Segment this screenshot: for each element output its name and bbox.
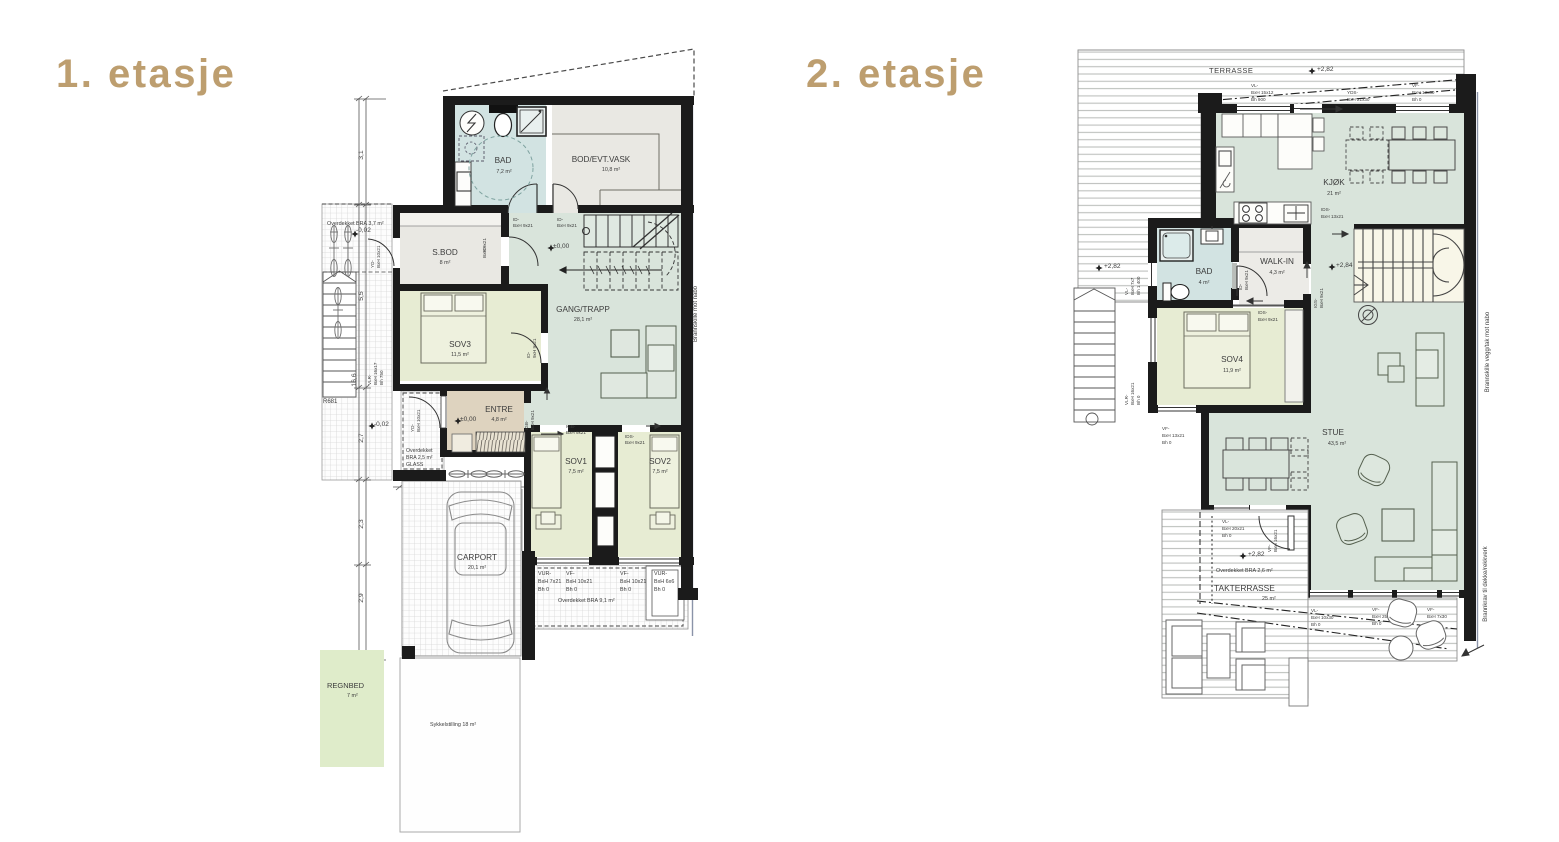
- svg-text:+2,82: +2,82: [1104, 263, 1121, 270]
- svg-text:BxH 10x21: BxH 10x21: [566, 579, 592, 585]
- svg-text:BxH 13x21: BxH 13x21: [1321, 214, 1344, 219]
- svg-text:BxH 9x21: BxH 9x21: [482, 238, 487, 258]
- svg-text:2,7: 2,7: [358, 433, 365, 443]
- svg-text:Overdekket BRA 2,6 m²: Overdekket BRA 2,6 m²: [1216, 568, 1273, 574]
- svg-text:7,2 m²: 7,2 m²: [496, 169, 511, 175]
- svg-text:BOD/EVT.VASK: BOD/EVT.VASK: [572, 155, 631, 164]
- svg-text:SOV1: SOV1: [565, 457, 587, 466]
- svg-text:BAD: BAD: [1196, 267, 1213, 276]
- svg-text:BxH 9x21: BxH 9x21: [1319, 288, 1324, 308]
- svg-text:R681: R681: [323, 399, 338, 405]
- svg-text:7,5 m²: 7,5 m²: [652, 469, 667, 475]
- svg-text:21 m²: 21 m²: [1327, 191, 1341, 197]
- svg-text:VUR-: VUR-: [538, 571, 551, 577]
- svg-text:ID-: ID-: [513, 217, 520, 222]
- svg-text:3,1: 3,1: [358, 150, 365, 160]
- svg-text:TERRASSE: TERRASSE: [1209, 66, 1253, 75]
- svg-text:CARPORT: CARPORT: [457, 553, 497, 562]
- svg-text:ENTRE: ENTRE: [485, 405, 513, 414]
- svg-text:IDS-: IDS-: [1258, 310, 1268, 315]
- svg-text:BxH 15x12: BxH 15x12: [1251, 90, 1274, 95]
- svg-text:VLR-: VLR-: [367, 374, 372, 385]
- svg-text:2. etasje: 2. etasje: [806, 52, 986, 96]
- svg-text:BxH 9x21: BxH 9x21: [1244, 270, 1249, 290]
- svg-text:4,8 m²: 4,8 m²: [491, 417, 506, 423]
- svg-text:BxH 7x30: BxH 7x30: [1427, 614, 1447, 619]
- svg-text:9xH 9x21: 9xH 9x21: [532, 338, 537, 358]
- svg-text:BxH 13x21: BxH 13x21: [1162, 433, 1185, 438]
- svg-text:Brannkrav til dekke/rekkverk: Brannkrav til dekke/rekkverk: [1483, 545, 1489, 621]
- svg-text:7 m²: 7 m²: [347, 693, 358, 699]
- svg-text:Bh 1 400: Bh 1 400: [1136, 276, 1141, 295]
- svg-text:VL-: VL-: [1222, 519, 1230, 524]
- svg-text:S.BOD: S.BOD: [432, 248, 458, 257]
- svg-text:BxH 9x21: BxH 9x21: [625, 440, 645, 445]
- svg-text:2,9: 2,9: [358, 593, 365, 603]
- svg-text:4,3 m²: 4,3 m²: [1269, 270, 1284, 276]
- svg-text:IDS-: IDS-: [1321, 207, 1331, 212]
- svg-text:BxH 16x21: BxH 16x21: [1130, 382, 1135, 405]
- svg-text:GLASS: GLASS: [406, 462, 424, 468]
- svg-text:REGNBED: REGNBED: [327, 681, 365, 690]
- svg-text:8 m²: 8 m²: [440, 260, 451, 266]
- svg-text:20,1 m²: 20,1 m²: [468, 565, 486, 571]
- svg-text:ID-: ID-: [557, 217, 564, 222]
- svg-text:Brannskille mot nabo: Brannskille mot nabo: [693, 285, 699, 342]
- svg-text:Brannskille vegg/tak mot nabo: Brannskille vegg/tak mot nabo: [1485, 311, 1491, 392]
- svg-text:±0,00: ±0,00: [460, 416, 477, 423]
- svg-text:GANG/TRAPP: GANG/TRAPP: [556, 305, 610, 314]
- svg-text:STUE: STUE: [1322, 428, 1344, 437]
- svg-text:Bh 0: Bh 0: [538, 587, 549, 593]
- svg-text:BxH 9x21: BxH 9x21: [557, 223, 577, 228]
- svg-text:11,9 m²: 11,9 m²: [1223, 368, 1241, 374]
- svg-text:WALK-IN: WALK-IN: [1260, 257, 1294, 266]
- svg-text:BxH 16x17: BxH 16x17: [373, 362, 378, 385]
- svg-text:ID-: ID-: [1238, 283, 1243, 290]
- svg-text:1. etasje: 1. etasje: [56, 52, 236, 96]
- svg-text:SOV3: SOV3: [449, 340, 471, 349]
- svg-text:Bh 0: Bh 0: [1136, 395, 1141, 405]
- svg-text:Bh 0: Bh 0: [1412, 97, 1422, 102]
- svg-text:SOV4: SOV4: [1221, 355, 1243, 364]
- svg-text:IGS-: IGS-: [1313, 298, 1318, 308]
- svg-text:Overdekket: Overdekket: [406, 448, 433, 454]
- svg-text:28,1 m²: 28,1 m²: [574, 317, 592, 323]
- svg-text:KJØK: KJØK: [1323, 178, 1345, 187]
- svg-text:BxH 9x21: BxH 9x21: [566, 430, 586, 435]
- svg-text:-0,02: -0,02: [356, 227, 371, 234]
- svg-text:VLR-: VLR-: [1124, 394, 1129, 405]
- svg-text:7,5 m²: 7,5 m²: [568, 469, 583, 475]
- svg-text:5,5: 5,5: [358, 291, 365, 301]
- svg-text:Overdekket BRA 9,1 m²: Overdekket BRA 9,1 m²: [558, 598, 615, 604]
- svg-text:BxH 7x7: BxH 7x7: [1130, 277, 1135, 295]
- svg-text:VF-: VF-: [1162, 426, 1170, 431]
- svg-text:2,3: 2,3: [358, 519, 365, 529]
- svg-text:10,8 m²: 10,8 m²: [602, 167, 620, 173]
- svg-text:YD-: YD-: [370, 260, 375, 268]
- svg-text:ID-: ID-: [526, 351, 531, 358]
- svg-text:IGB-: IGB-: [524, 420, 529, 430]
- svg-text:BxH 20x21: BxH 20x21: [1222, 526, 1245, 531]
- svg-text:BxH 10x21: BxH 10x21: [416, 409, 421, 432]
- svg-text:BxH 9x21: BxH 9x21: [530, 410, 535, 430]
- svg-text:BxH 16x21: BxH 16x21: [1273, 529, 1278, 552]
- svg-text:BAD: BAD: [495, 156, 512, 165]
- svg-text:+2,82: +2,82: [1248, 551, 1265, 558]
- svg-text:VF-: VF-: [1267, 544, 1272, 552]
- svg-text:Sykkelstilling 18 m²: Sykkelstilling 18 m²: [430, 722, 476, 728]
- svg-text:IDS-: IDS-: [625, 434, 635, 439]
- svg-text:VF-: VF-: [566, 571, 575, 577]
- svg-text:BxH 9x21: BxH 9x21: [1258, 317, 1278, 322]
- svg-text:BRA 2,5 m²: BRA 2,5 m²: [406, 455, 433, 461]
- svg-text:Bh 0: Bh 0: [1372, 621, 1382, 626]
- svg-text:BxH 10x21: BxH 10x21: [620, 579, 646, 585]
- svg-text:Bh 0: Bh 0: [620, 587, 631, 593]
- svg-text:VL-: VL-: [1124, 287, 1129, 295]
- svg-text:BxH 10x30: BxH 10x30: [1311, 615, 1334, 620]
- svg-text:TAKTERRASSE: TAKTERRASSE: [1214, 583, 1275, 593]
- svg-text:Bh 0: Bh 0: [1162, 440, 1172, 445]
- svg-text:Bh 0: Bh 0: [654, 587, 665, 593]
- svg-text:SOV2: SOV2: [649, 457, 671, 466]
- svg-text:YD-: YD-: [410, 424, 415, 432]
- svg-text:25 m²: 25 m²: [1262, 596, 1276, 602]
- svg-text:Bh 0: Bh 0: [1311, 622, 1321, 627]
- svg-text:4 m²: 4 m²: [1199, 280, 1210, 286]
- svg-text:Bh 0: Bh 0: [1222, 533, 1232, 538]
- svg-text:BxH 21x30: BxH 21x30: [1347, 97, 1370, 102]
- svg-text:+2,84: +2,84: [1336, 262, 1353, 269]
- svg-text:VF-: VF-: [620, 571, 629, 577]
- svg-text:VL-: VL-: [1251, 83, 1259, 88]
- svg-text:BxH 9x21: BxH 9x21: [513, 223, 533, 228]
- svg-text:16,6: 16,6: [351, 373, 358, 386]
- svg-text:BxH 7x21: BxH 7x21: [538, 579, 561, 585]
- svg-text:BxH 10x21: BxH 10x21: [376, 245, 381, 268]
- svg-text:Bh 900: Bh 900: [1251, 97, 1266, 102]
- svg-text:YDS-: YDS-: [1347, 90, 1358, 95]
- svg-text:Bh 750: Bh 750: [379, 370, 384, 385]
- svg-text:+2,82: +2,82: [1317, 66, 1334, 73]
- svg-text:VUR-: VUR-: [654, 571, 667, 577]
- svg-text:-0,02: -0,02: [374, 421, 389, 428]
- svg-text:VL-: VL-: [1311, 608, 1319, 613]
- svg-text:±0,00: ±0,00: [553, 243, 570, 250]
- svg-text:VF-: VF-: [1372, 607, 1380, 612]
- svg-text:Bh 0: Bh 0: [566, 587, 577, 593]
- svg-text:IGB-: IGB-: [566, 424, 576, 429]
- svg-text:VF-: VF-: [1427, 607, 1435, 612]
- svg-text:43,5 m²: 43,5 m²: [1328, 441, 1346, 447]
- svg-text:BxH 6x6: BxH 6x6: [654, 579, 674, 585]
- svg-text:11,5 m²: 11,5 m²: [451, 352, 469, 358]
